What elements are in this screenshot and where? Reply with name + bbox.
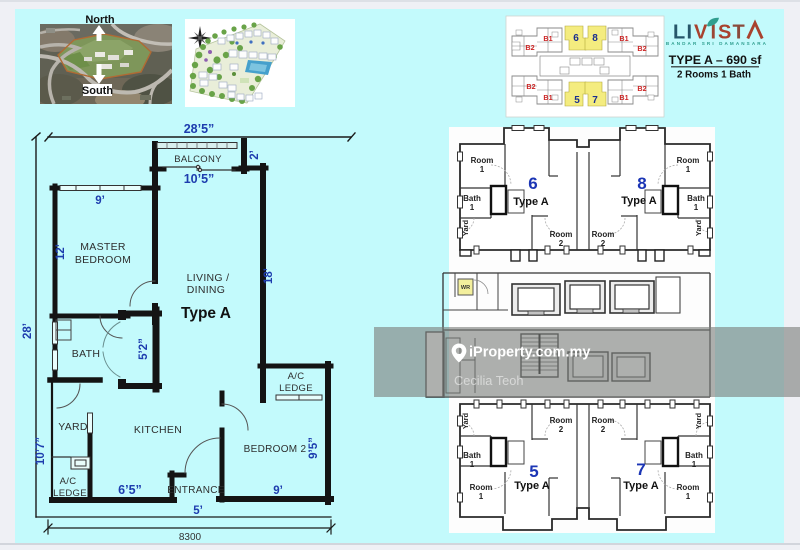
svg-text:6: 6 — [573, 33, 579, 44]
svg-text:BANDAR SRI DAMANSARA: BANDAR SRI DAMANSARA — [666, 41, 768, 46]
svg-text:Bath: Bath — [463, 194, 481, 203]
svg-text:LEDGE: LEDGE — [279, 383, 313, 394]
svg-text:B1: B1 — [619, 34, 628, 43]
svg-text:8: 8 — [637, 174, 646, 193]
svg-text:BEDROOM 2: BEDROOM 2 — [244, 444, 307, 455]
svg-text:B2: B2 — [637, 84, 646, 93]
svg-text:Room: Room — [677, 156, 700, 165]
svg-text:10’5”: 10’5” — [184, 172, 215, 186]
svg-text:B1: B1 — [543, 93, 552, 102]
svg-text:Bath: Bath — [687, 194, 705, 203]
svg-text:Yard: Yard — [461, 412, 470, 429]
svg-text:Type A: Type A — [181, 305, 231, 322]
svg-text:8300: 8300 — [179, 532, 202, 543]
svg-text:TYPE A – 690 sf: TYPE A – 690 sf — [669, 53, 763, 67]
svg-text:1: 1 — [479, 492, 484, 501]
svg-text:5’2”: 5’2” — [138, 338, 150, 360]
svg-text:6: 6 — [528, 174, 537, 193]
svg-text:1: 1 — [470, 460, 475, 469]
svg-text:8: 8 — [592, 33, 598, 44]
svg-text:1: 1 — [470, 203, 475, 212]
svg-text:A/C: A/C — [60, 476, 77, 487]
svg-text:2 Rooms 1 Bath: 2 Rooms 1 Bath — [677, 70, 751, 81]
svg-text:WR: WR — [461, 285, 470, 291]
svg-text:12’: 12’ — [55, 244, 67, 260]
svg-text:Bath: Bath — [463, 451, 481, 460]
svg-text:B2: B2 — [637, 44, 646, 53]
svg-text:18’: 18’ — [263, 268, 275, 284]
svg-text:28’: 28’ — [22, 323, 34, 339]
svg-text:Room: Room — [550, 230, 573, 239]
svg-text:B2: B2 — [526, 82, 535, 91]
svg-text:28’5”: 28’5” — [184, 122, 215, 136]
svg-text:Type A: Type A — [623, 480, 659, 492]
svg-text:Yard: Yard — [694, 412, 703, 429]
svg-text:LEDGE: LEDGE — [53, 488, 87, 499]
svg-text:B2: B2 — [525, 43, 534, 52]
svg-text:Room: Room — [677, 483, 700, 492]
svg-text:Room: Room — [592, 230, 615, 239]
svg-text:Bath: Bath — [685, 451, 703, 460]
svg-text:9’: 9’ — [95, 195, 105, 207]
svg-text:10’7”: 10’7” — [35, 437, 47, 465]
svg-text:Room: Room — [592, 416, 615, 425]
svg-text:LIVING /: LIVING / — [187, 272, 230, 284]
svg-text:Room: Room — [470, 483, 493, 492]
svg-text:2: 2 — [601, 425, 606, 434]
svg-text:6’5”: 6’5” — [118, 483, 142, 497]
svg-text:MASTER: MASTER — [80, 241, 126, 253]
svg-text:5’: 5’ — [193, 505, 203, 517]
svg-text:7: 7 — [636, 460, 645, 479]
svg-text:9’5”: 9’5” — [308, 437, 320, 459]
svg-text:BEDROOM: BEDROOM — [75, 254, 131, 266]
svg-text:Type A: Type A — [621, 195, 657, 207]
svg-text:9’: 9’ — [273, 485, 283, 497]
svg-text:2: 2 — [559, 239, 564, 248]
svg-text:1: 1 — [692, 460, 697, 469]
svg-text:B1: B1 — [543, 34, 552, 43]
svg-text:Yard: Yard — [461, 219, 470, 236]
svg-text:Yard: Yard — [694, 219, 703, 236]
svg-text:BALCONY: BALCONY — [174, 154, 222, 165]
svg-text:South: South — [82, 85, 113, 97]
svg-text:A/C: A/C — [288, 371, 305, 382]
svg-text:5: 5 — [529, 462, 538, 481]
svg-text:1: 1 — [480, 165, 485, 174]
svg-text:2’: 2’ — [249, 150, 261, 160]
svg-text:Type A: Type A — [514, 480, 550, 492]
svg-text:North: North — [85, 14, 115, 26]
svg-text:Room: Room — [550, 416, 573, 425]
svg-text:YARD: YARD — [58, 421, 88, 433]
svg-text:ENTRANCE: ENTRANCE — [167, 485, 224, 496]
svg-text:B1: B1 — [619, 93, 628, 102]
svg-text:Type A: Type A — [513, 196, 549, 208]
svg-text:BATH: BATH — [72, 348, 100, 360]
svg-text:Cecilia Teoh: Cecilia Teoh — [454, 373, 523, 388]
svg-text:5: 5 — [574, 95, 580, 106]
svg-text:Room: Room — [471, 156, 494, 165]
svg-text:DINING: DINING — [187, 284, 226, 296]
svg-text:1: 1 — [686, 492, 691, 501]
svg-text:7: 7 — [592, 95, 598, 106]
svg-text:KITCHEN: KITCHEN — [134, 424, 182, 436]
svg-text:2: 2 — [559, 425, 564, 434]
svg-text:1: 1 — [686, 165, 691, 174]
svg-text:iProperty.com.my: iProperty.com.my — [469, 345, 590, 361]
svg-text:1: 1 — [694, 203, 699, 212]
